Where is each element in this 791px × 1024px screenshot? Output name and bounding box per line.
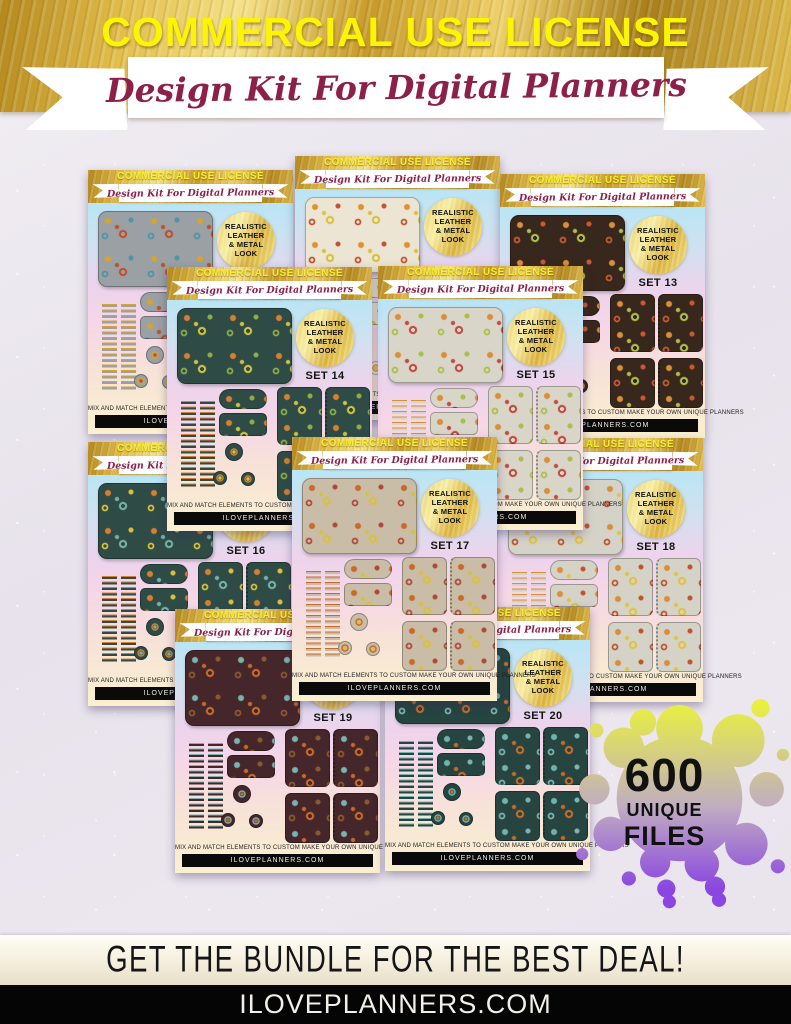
set-number-label: SET 17	[404, 540, 496, 552]
pattern-swatch-large	[185, 650, 300, 726]
pattern-swatch-tall	[285, 729, 330, 787]
pattern-swatch-tall	[608, 558, 653, 616]
pattern-swatch-tall	[658, 358, 703, 408]
card-license-title: COMMERCIAL USE LICENSE	[500, 175, 705, 186]
card-kit-subtitle: Design Kit For Digital Planners	[186, 284, 353, 297]
pattern-swatch-large	[302, 478, 417, 554]
card-ribbon: Design Kit For Digital Planners	[531, 188, 675, 206]
pattern-dot	[443, 783, 461, 801]
washi-strip-column	[181, 401, 196, 489]
card-set-17: COMMERCIAL USE LICENSE Design Kit For Di…	[292, 437, 497, 701]
card-gold-banner: COMMERCIAL USE LICENSE Design Kit For Di…	[378, 266, 583, 299]
realistic-leather-badge: REALISTIC LEATHER & METAL LOOK	[421, 479, 479, 537]
pattern-swatch-oval	[550, 560, 598, 580]
realistic-leather-badge: REALISTIC LEATHER & METAL LOOK	[629, 216, 687, 274]
pattern-swatch-tall	[450, 557, 495, 615]
card-license-title: COMMERCIAL USE LICENSE	[295, 157, 500, 168]
pattern-swatch-tall	[488, 386, 533, 444]
card-gold-banner: COMMERCIAL USE LICENSE Design Kit For Di…	[167, 267, 372, 300]
site-url: ILOVEPLANNERS.COM	[239, 989, 552, 1020]
card-site-text: ILOVEPLANNERS.COM	[441, 855, 535, 862]
pattern-dot	[146, 346, 164, 364]
pattern-dot	[162, 647, 176, 661]
pattern-swatch-small	[227, 755, 275, 778]
pattern-swatch-small	[344, 583, 392, 606]
pattern-dot	[431, 811, 445, 825]
pattern-dot	[338, 641, 352, 655]
pattern-swatch-oval	[437, 729, 485, 749]
pattern-swatch-small	[550, 584, 598, 607]
card-gold-banner: COMMERCIAL USE LICENSE Design Kit For Di…	[500, 174, 705, 207]
pattern-swatch-large	[388, 307, 503, 383]
set-number-label: SET 18	[610, 541, 702, 553]
pattern-swatch-small	[140, 588, 188, 611]
card-gold-banner: COMMERCIAL USE LICENSE Design Kit For Di…	[295, 156, 500, 189]
mix-match-text: MIX AND MATCH ELEMENTS TO CUSTOM MAKE YO…	[292, 673, 497, 679]
washi-strip-column	[102, 304, 117, 392]
washi-strip-column	[102, 576, 117, 664]
pattern-swatch-small	[437, 753, 485, 776]
pattern-swatch-tall	[402, 621, 447, 671]
badge-line: LOOK	[439, 517, 462, 526]
card-site-bar: ILOVEPLANNERS.COM	[299, 682, 490, 695]
pattern-dot	[241, 472, 255, 486]
set-number-label: SET 15	[490, 369, 582, 381]
pattern-swatch-oval	[227, 731, 275, 751]
card-ribbon: Design Kit For Digital Planners	[323, 451, 467, 469]
pattern-swatch-tall	[402, 557, 447, 615]
card-license-title: COMMERCIAL USE LICENSE	[378, 267, 583, 278]
pattern-swatch-small	[430, 412, 478, 435]
badge-line: LOOK	[442, 236, 465, 245]
badge-line: LOOK	[647, 254, 670, 263]
pattern-dot	[213, 471, 227, 485]
badge-line: LOOK	[532, 687, 555, 696]
set-number-label: SET 16	[200, 545, 292, 557]
pattern-swatch-tall	[333, 729, 378, 787]
card-body: REALISTIC LEATHER & METAL LOOK SET 17 MI…	[292, 470, 497, 701]
realistic-leather-badge: REALISTIC LEATHER & METAL LOOK	[507, 308, 565, 366]
pattern-dot	[350, 613, 368, 631]
deal-text: GET THE BUNDLE FOR THE BEST DEAL!	[106, 939, 685, 982]
pattern-swatch-large	[177, 308, 292, 384]
card-ribbon: Design Kit For Digital Planners	[326, 170, 470, 188]
pattern-swatch-oval	[430, 388, 478, 408]
pattern-dot	[233, 785, 251, 803]
pattern-dot	[249, 814, 263, 828]
site-banner: ILOVEPLANNERS.COM	[0, 985, 791, 1024]
files-count-badge: 600 UNIQUE FILES	[568, 692, 791, 920]
washi-strip-column	[399, 741, 414, 829]
pattern-swatch-tall	[610, 294, 655, 352]
pattern-swatch-tall	[656, 622, 701, 672]
card-license-title: COMMERCIAL USE LICENSE	[167, 268, 372, 279]
pattern-dot	[146, 618, 164, 636]
card-site-bar: ILOVEPLANNERS.COM	[392, 852, 583, 865]
deal-banner: GET THE BUNDLE FOR THE BEST DEAL!	[0, 935, 791, 985]
mix-match-text: MIX AND MATCH ELEMENTS TO CUSTOM MAKE YO…	[175, 845, 380, 851]
realistic-leather-badge: REALISTIC LEATHER & METAL LOOK	[217, 212, 275, 270]
card-site-bar: ILOVEPLANNERS.COM	[182, 854, 373, 867]
pattern-swatch-tall	[656, 558, 701, 616]
pattern-swatch-tall	[536, 386, 581, 444]
files-unique-label: UNIQUE	[568, 800, 761, 821]
pattern-swatch-tall	[536, 450, 581, 500]
card-gold-banner: COMMERCIAL USE LICENSE Design Kit For Di…	[88, 170, 293, 203]
card-site-text: ILOVEPLANNERS.COM	[231, 857, 325, 864]
pattern-swatch-tall	[333, 793, 378, 843]
set-number-label: SET 13	[612, 277, 704, 289]
realistic-leather-badge: REALISTIC LEATHER & METAL LOOK	[627, 480, 685, 538]
files-count: 600	[568, 752, 761, 798]
pattern-swatch-oval	[140, 564, 188, 584]
card-kit-subtitle: Design Kit For Digital Planners	[519, 191, 686, 204]
pattern-swatch-tall	[658, 294, 703, 352]
realistic-leather-badge: REALISTIC LEATHER & METAL LOOK	[296, 309, 354, 367]
card-gold-banner: COMMERCIAL USE LICENSE Design Kit For Di…	[292, 437, 497, 470]
pattern-dot	[221, 813, 235, 827]
pattern-swatch-large	[305, 197, 420, 273]
card-license-title: COMMERCIAL USE LICENSE	[292, 438, 497, 449]
mix-match-text: MIX AND MATCH ELEMENTS TO CUSTOM MAKE YO…	[385, 843, 590, 849]
card-site-text: ILOVEPLANNERS.COM	[348, 685, 442, 692]
pattern-dot	[366, 642, 380, 656]
card-kit-subtitle: Design Kit For Digital Planners	[314, 173, 481, 186]
card-ribbon: Design Kit For Digital Planners	[119, 184, 263, 202]
card-license-title: COMMERCIAL USE LICENSE	[88, 171, 293, 182]
pattern-swatch-oval	[219, 389, 267, 409]
washi-strip-column	[189, 743, 204, 831]
pattern-dot	[459, 812, 473, 826]
files-files-label: FILES	[568, 821, 761, 852]
card-ribbon: Design Kit For Digital Planners	[198, 281, 342, 299]
set-number-label: SET 19	[287, 712, 379, 724]
pattern-swatch-tall	[495, 791, 540, 841]
realistic-leather-badge: REALISTIC LEATHER & METAL LOOK	[424, 198, 482, 256]
pattern-swatch-tall	[495, 727, 540, 785]
pattern-swatch-tall	[285, 793, 330, 843]
badge-line: LOOK	[645, 518, 668, 527]
badge-line: LOOK	[314, 347, 337, 356]
card-ribbon: Design Kit For Digital Planners	[409, 280, 553, 298]
badge-line: LOOK	[525, 346, 548, 355]
product-listing-image: COMMERCIAL USE LICENSE Design Kit For Di…	[0, 0, 791, 1024]
card-kit-subtitle: Design Kit For Digital Planners	[107, 187, 274, 200]
card-kit-subtitle: Design Kit For Digital Planners	[397, 283, 564, 296]
set-number-label: SET 14	[279, 370, 371, 382]
pattern-swatch-tall	[608, 622, 653, 672]
pattern-dot	[134, 646, 148, 660]
card-kit-subtitle: Design Kit For Digital Planners	[311, 454, 478, 467]
pattern-swatch-tall	[450, 621, 495, 671]
pattern-dot	[134, 374, 148, 388]
washi-strip-column	[306, 571, 321, 659]
pattern-swatch-small	[219, 413, 267, 436]
badge-line: LOOK	[235, 250, 258, 259]
badge-text-group: 600 UNIQUE FILES	[568, 752, 761, 852]
pattern-swatch-oval	[344, 559, 392, 579]
pattern-swatch-tall	[610, 358, 655, 408]
pattern-dot	[225, 443, 243, 461]
